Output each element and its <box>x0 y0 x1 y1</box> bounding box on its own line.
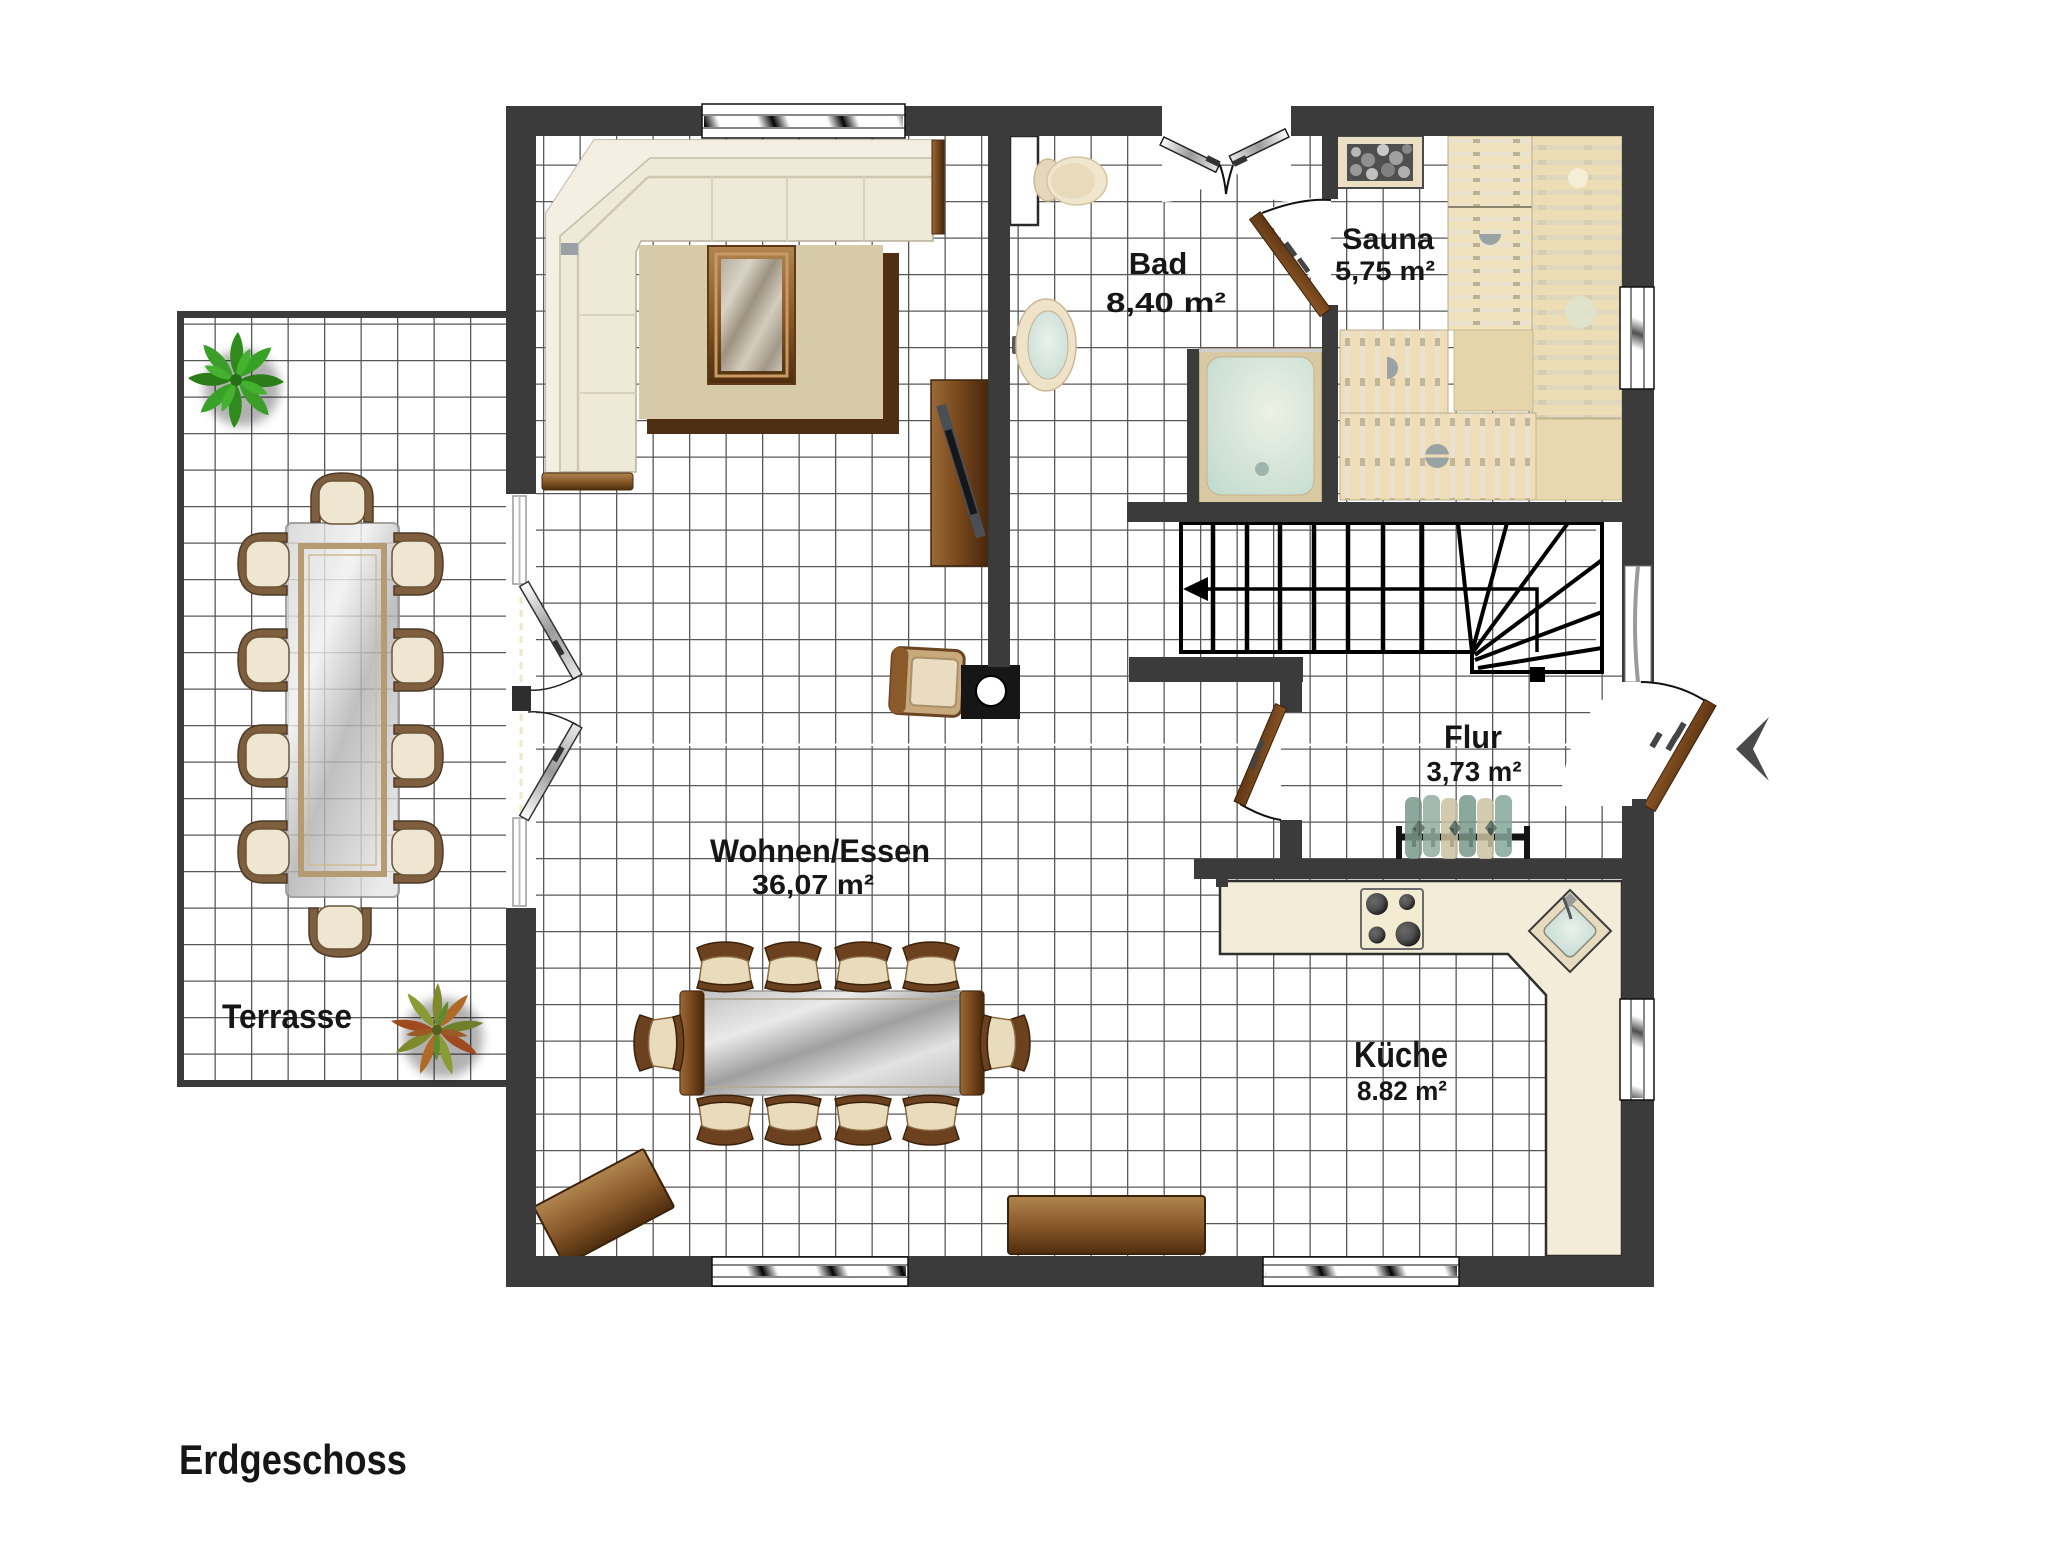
svg-text:Terrasse: Terrasse <box>222 998 352 1036</box>
svg-text:Flur: Flur <box>1444 719 1502 755</box>
svg-text:8.82 m²: 8.82 m² <box>1357 1076 1447 1106</box>
svg-text:5,75 m²: 5,75 m² <box>1335 256 1435 286</box>
svg-text:Bad: Bad <box>1129 246 1188 281</box>
svg-text:3,73 m²: 3,73 m² <box>1427 756 1522 787</box>
svg-text:Erdgeschoss: Erdgeschoss <box>179 1436 407 1483</box>
svg-text:36,07 m²: 36,07 m² <box>752 869 874 900</box>
svg-text:8,40 m²: 8,40 m² <box>1106 287 1226 318</box>
svg-text:Sauna: Sauna <box>1342 223 1434 256</box>
svg-text:Wohnen/Essen: Wohnen/Essen <box>710 833 930 869</box>
svg-text:Küche: Küche <box>1354 1034 1448 1075</box>
